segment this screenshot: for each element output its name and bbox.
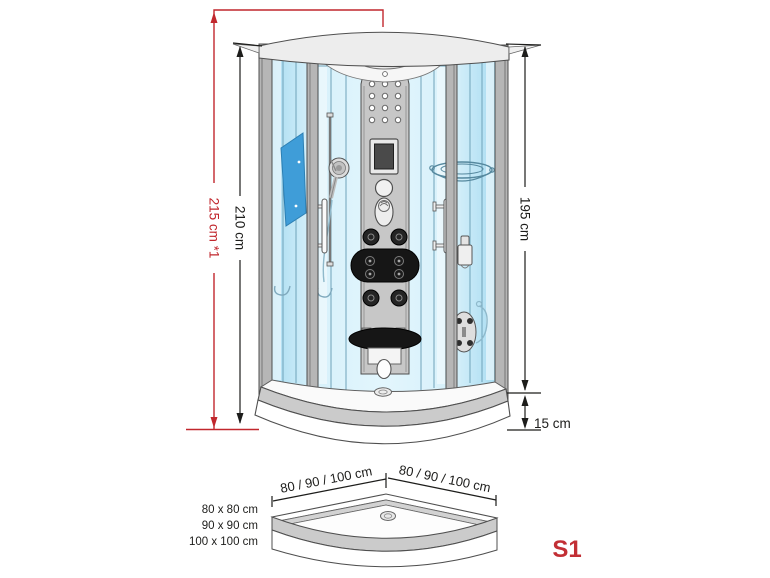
height-total-label: 215 cm *1 <box>206 198 221 259</box>
model-label: S1 <box>552 536 581 563</box>
drain-cap <box>375 388 392 396</box>
shower-cabin-dimension-diagram: 215 cm *1 210 cm 195 cm 15 cm 80 / 90 / … <box>0 0 770 578</box>
control-knob <box>376 180 393 197</box>
tray-isometric-drawing <box>272 494 497 567</box>
cabin-tray-front <box>255 380 510 444</box>
tray-width-right-label: 80 / 90 / 100 cm <box>398 462 492 495</box>
size-option-80: 80 x 80 cm <box>202 504 258 516</box>
size-option-90: 90 x 90 cm <box>202 520 258 532</box>
panel-foot-jet <box>377 360 391 379</box>
height-door-label: 195 cm <box>517 197 532 241</box>
dimension-height-cabin: 210 cm <box>232 43 262 424</box>
tray-size-list: 80 x 80 cm 90 x 90 cm 100 x 100 cm <box>189 504 258 548</box>
size-option-100: 100 x 100 cm <box>189 536 258 548</box>
dimension-height-door: 195 cm <box>506 44 541 393</box>
height-cabin-label: 210 cm <box>232 206 247 250</box>
mixer-valve <box>375 198 393 226</box>
headrest <box>351 249 419 282</box>
cabin-front-view <box>233 32 541 444</box>
display-screen <box>370 139 398 174</box>
tray-drain <box>381 512 396 521</box>
tray-size-diagram: 80 / 90 / 100 cm 80 / 90 / 100 cm <box>272 462 497 567</box>
dimension-tray-height: 15 cm <box>507 395 571 431</box>
diagram-canvas: 215 cm *1 210 cm 195 cm 15 cm 80 / 90 / … <box>0 0 770 578</box>
left-glass-panel <box>281 133 306 226</box>
tray-height-label: 15 cm <box>534 416 571 431</box>
